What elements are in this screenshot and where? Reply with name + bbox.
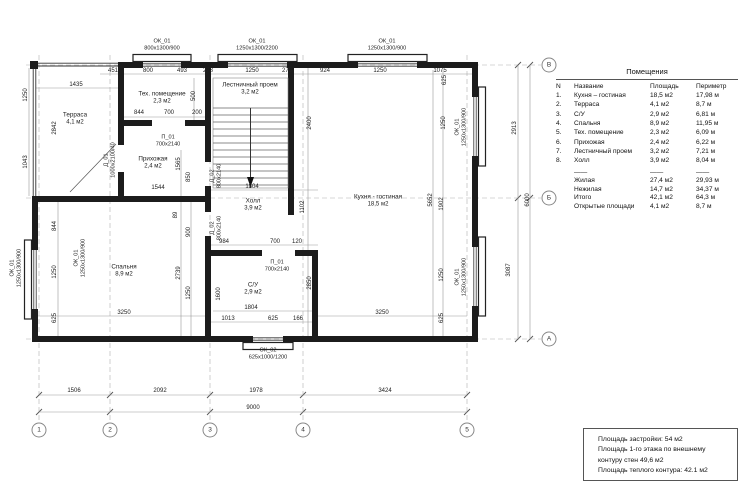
table-cell-area: 2,3 м2 bbox=[650, 129, 696, 136]
room-area: 3,9 м2 bbox=[244, 205, 261, 213]
dimension-label: 900 bbox=[186, 227, 192, 237]
rooms-table-rule bbox=[556, 79, 738, 80]
opening-size: 1250х1300/900 bbox=[461, 258, 468, 297]
table-cell-name: Нежилая bbox=[574, 186, 650, 193]
room-name: Холл bbox=[244, 197, 261, 205]
dimension-label: 2739 bbox=[176, 266, 182, 279]
table-cell-area: 14,7 м2 bbox=[650, 186, 696, 193]
dimension-label: 2913 bbox=[512, 121, 518, 134]
room-name: Лестничный проем bbox=[222, 81, 277, 89]
table-cell-name: Терраса bbox=[574, 101, 650, 108]
table-row: 4.Спальня8,9 м211,95 м bbox=[556, 119, 738, 128]
col-perimeter: Периметр bbox=[696, 83, 738, 90]
dimension-label: 1250 bbox=[52, 265, 58, 278]
rooms-table-title: Помещения bbox=[556, 67, 738, 76]
dimension-label: 924 bbox=[320, 68, 330, 74]
table-cell-area: 2,4 м2 bbox=[650, 139, 696, 146]
room-area: 2,4 м2 bbox=[138, 163, 167, 171]
dimension-label: 800 bbox=[143, 68, 153, 74]
opening-size: 1000х2100/40 bbox=[110, 142, 117, 177]
opening-code: ОК_01 bbox=[236, 38, 278, 45]
opening-code: ОК_01 bbox=[368, 38, 407, 45]
table-row: 3.С/У2,9 м26,81 м bbox=[556, 110, 738, 119]
dimension-label: 1102 bbox=[300, 201, 306, 214]
dimension-label: 278 bbox=[282, 68, 292, 74]
opening-size: 700х2140 bbox=[156, 141, 181, 148]
dimension-label: 850 bbox=[186, 172, 192, 182]
room-name: Терраса bbox=[63, 111, 87, 119]
opening-label: П_01700х2140 bbox=[156, 134, 181, 147]
table-cell-n: 7. bbox=[556, 148, 574, 155]
opening-size: 700х2140 bbox=[265, 266, 290, 273]
table-cell-area: 3,9 м2 bbox=[650, 157, 696, 164]
col-area: Площадь bbox=[650, 83, 696, 90]
dimension-label: 700 bbox=[164, 110, 174, 116]
col-name: Название bbox=[574, 83, 650, 90]
dimension-label: 1250 bbox=[439, 268, 445, 281]
dimension-label: 500 bbox=[191, 91, 197, 101]
opening-size: 800х2140 bbox=[216, 216, 223, 241]
opening-size: 800х1300/900 bbox=[144, 45, 179, 52]
opening-label: ОК_01800х1300/900 bbox=[144, 38, 179, 51]
dimension-label: 1506 bbox=[67, 388, 80, 394]
opening-code: Д_01 bbox=[103, 142, 110, 177]
dimension-label: 1435 bbox=[69, 82, 82, 88]
dimension-label: 120 bbox=[292, 239, 302, 245]
table-cell-name: Спальня bbox=[574, 120, 650, 127]
opening-size: 1250х1300/900 bbox=[368, 45, 407, 52]
room-area: 2,3 м2 bbox=[138, 98, 185, 106]
dimension-label: 3250 bbox=[117, 310, 130, 316]
room-label: Холл3,9 м2 bbox=[244, 197, 261, 212]
table-cell-name: —— bbox=[574, 169, 650, 176]
table-cell-area: 3,2 м2 bbox=[650, 148, 696, 155]
dimension-label: 89 bbox=[173, 212, 179, 219]
opening-size: 1250х1300/2200 bbox=[236, 45, 278, 52]
drawing-sheet: 1435451800493278125027892412501075844700… bbox=[0, 0, 738, 502]
opening-size: 625х1000/1200 bbox=[249, 354, 288, 361]
grid-bubble-col: 3 bbox=[203, 423, 218, 438]
dimension-label: 844 bbox=[134, 110, 144, 116]
opening-size: 1250х1300/900 bbox=[16, 249, 23, 288]
dimension-label: 1600 bbox=[216, 287, 222, 300]
grid-bubble-row: Б bbox=[542, 191, 557, 206]
dimension-label: 200 bbox=[192, 110, 202, 116]
dimension-label: 1043 bbox=[23, 155, 29, 168]
dimension-label: 700 bbox=[270, 239, 280, 245]
table-cell-perimeter: 6,81 м bbox=[696, 111, 738, 118]
grid-bubble-row: А bbox=[542, 332, 557, 347]
opening-code: ОК_02 bbox=[249, 347, 288, 354]
opening-label: ОК_011250х1300/900 bbox=[73, 239, 86, 278]
table-cell-perimeter: 7,21 м bbox=[696, 148, 738, 155]
opening-code: П_01 bbox=[265, 259, 290, 266]
grid-bubble-col: 1 bbox=[32, 423, 47, 438]
dimension-label: 1250 bbox=[23, 88, 29, 101]
room-name: Кухня - гостиная bbox=[354, 193, 402, 201]
note-line: Площадь 1-го этажа по внешнему bbox=[598, 445, 708, 455]
opening-code: ОК_01 bbox=[454, 108, 461, 147]
room-label: Кухня - гостиная18,5 м2 bbox=[354, 193, 402, 208]
table-cell-area: 2,9 м2 bbox=[650, 111, 696, 118]
dimension-label: 625 bbox=[52, 313, 58, 323]
opening-label: ОК_02625х1000/1200 bbox=[249, 347, 288, 360]
dimension-label: 1978 bbox=[249, 388, 262, 394]
table-cell-area: 4,1 м2 bbox=[650, 101, 696, 108]
dimension-label: 625 bbox=[439, 313, 445, 323]
dimension-label: 1250 bbox=[373, 68, 386, 74]
opening-label: Д_02800х2140 bbox=[209, 164, 222, 189]
grid-bubble-row: В bbox=[542, 58, 557, 73]
dimension-label: 493 bbox=[177, 68, 187, 74]
dimension-label: 1565 bbox=[176, 157, 182, 170]
table-cell-perimeter: 11,95 м bbox=[696, 120, 738, 127]
grid-bubble-col: 5 bbox=[460, 423, 475, 438]
dimension-label: 1013 bbox=[221, 316, 234, 322]
opening-size: 800х2140 bbox=[216, 164, 223, 189]
dimension-label: 1250 bbox=[441, 116, 447, 129]
notes-box: Площадь застройки: 54 м2Площадь 1-го эта… bbox=[583, 428, 738, 481]
opening-label: ОК_011250х1300/2200 bbox=[236, 38, 278, 51]
dimension-label: 1250 bbox=[245, 68, 258, 74]
note-line: Площадь застройки: 54 м2 bbox=[598, 435, 708, 445]
table-cell-n: 8. bbox=[556, 157, 574, 164]
dimension-label: 1804 bbox=[244, 305, 257, 311]
dimension-label: 1250 bbox=[186, 286, 192, 299]
dimension-label: 166 bbox=[293, 316, 303, 322]
table-cell-n: 2. bbox=[556, 101, 574, 108]
dimension-label: 1902 bbox=[439, 197, 445, 210]
dimension-label: 6000 bbox=[525, 193, 531, 206]
dimension-label: 2092 bbox=[153, 388, 166, 394]
table-cell-name: Лестничный проем bbox=[574, 148, 650, 155]
dimension-label: 625 bbox=[442, 75, 448, 85]
dimension-label: 2842 bbox=[52, 121, 58, 134]
table-cell-name: Открытые площади bbox=[574, 203, 650, 210]
col-n: N bbox=[556, 83, 574, 90]
table-cell-perimeter: 64,3 м bbox=[696, 194, 738, 201]
room-name: С/У bbox=[244, 281, 261, 289]
room-name: Прихожая bbox=[138, 155, 167, 163]
dimension-label: 3087 bbox=[506, 263, 512, 276]
dimension-label: 451 bbox=[108, 68, 118, 74]
opening-code: Д_02 bbox=[209, 216, 216, 241]
room-area: 4,1 м2 bbox=[63, 119, 87, 127]
opening-label: ОК_011250х1300/900 bbox=[9, 249, 22, 288]
room-label: Терраса4,1 м2 bbox=[63, 111, 87, 126]
opening-label: ОК_011250х1300/900 bbox=[368, 38, 407, 51]
dimension-label: 278 bbox=[203, 68, 213, 74]
opening-size: 1250х1300/900 bbox=[80, 239, 87, 278]
dimension-label: 9000 bbox=[246, 405, 259, 411]
dimension-label: 2850 bbox=[307, 276, 313, 289]
dimension-label: 2400 bbox=[307, 116, 313, 129]
table-cell-n: 1. bbox=[556, 92, 574, 99]
table-cell-name: Тех. помещение bbox=[574, 129, 650, 136]
opening-code: Д_02 bbox=[209, 164, 216, 189]
table-cell-name: Прихожая bbox=[574, 139, 650, 146]
room-label: Лестничный проем3,2 м2 bbox=[222, 81, 277, 96]
table-cell-n: 4. bbox=[556, 120, 574, 127]
table-row: 1.Кухня – гостиная18,5 м217,98 м bbox=[556, 91, 738, 100]
opening-size: 1250х1300/900 bbox=[461, 108, 468, 147]
room-label: Тех. помещение2,3 м2 bbox=[138, 90, 185, 105]
grid-bubble-col: 4 bbox=[296, 423, 311, 438]
table-cell-n: 3. bbox=[556, 111, 574, 118]
note-line: контуру стен 49,6 м2 bbox=[598, 456, 708, 466]
rooms-table-header: N Название Площадь Периметр bbox=[556, 82, 738, 91]
dimension-label: 5652 bbox=[428, 193, 434, 206]
opening-label: Д_02800х2140 bbox=[209, 216, 222, 241]
table-cell-name: Кухня – гостиная bbox=[574, 92, 650, 99]
opening-code: ОК_01 bbox=[9, 249, 16, 288]
dimension-label: 844 bbox=[52, 221, 58, 231]
room-name: Тех. помещение bbox=[138, 90, 185, 98]
table-cell-perimeter: 6,22 м bbox=[696, 139, 738, 146]
room-name: Спальня bbox=[111, 263, 136, 271]
table-cell-area: 8,9 м2 bbox=[650, 120, 696, 127]
opening-code: ОК_01 bbox=[144, 38, 179, 45]
grid-bubble-col: 2 bbox=[103, 423, 118, 438]
opening-label: ОК_011250х1300/900 bbox=[454, 258, 467, 297]
room-label: Спальня8,9 м2 bbox=[111, 263, 136, 278]
table-cell-n: 6. bbox=[556, 139, 574, 146]
dimension-label: 1075 bbox=[433, 68, 446, 74]
table-cell-perimeter: 29,93 м bbox=[696, 177, 738, 184]
table-cell-perimeter: 8,7 м bbox=[696, 101, 738, 108]
room-area: 8,9 м2 bbox=[111, 271, 136, 279]
dimension-label: 625 bbox=[268, 316, 278, 322]
table-row: 8.Холл3,9 м28,04 м bbox=[556, 156, 738, 165]
room-area: 18,5 м2 bbox=[354, 201, 402, 209]
opening-label: Д_011000х2100/40 bbox=[103, 142, 116, 177]
opening-code: ОК_01 bbox=[454, 258, 461, 297]
table-cell-area: 42,1 м2 bbox=[650, 194, 696, 201]
room-area: 2,9 м2 bbox=[244, 289, 261, 297]
dimension-label: 1544 bbox=[151, 185, 164, 191]
table-row: 7.Лестничный проем3,2 м27,21 м bbox=[556, 147, 738, 156]
dimension-label: 1804 bbox=[245, 184, 258, 190]
table-cell-perimeter: 8,04 м bbox=[696, 157, 738, 164]
table-cell-n: 5. bbox=[556, 129, 574, 136]
table-cell-perimeter: —— bbox=[696, 169, 738, 176]
table-row: 5.Тех. помещение2,3 м26,09 м bbox=[556, 128, 738, 137]
dimension-label: 3250 bbox=[375, 310, 388, 316]
table-cell-area: 4,1 м2 bbox=[650, 203, 696, 210]
notes-lines: Площадь застройки: 54 м2Площадь 1-го эта… bbox=[598, 435, 708, 476]
table-cell-name: Итого bbox=[574, 194, 650, 201]
table-cell-area: —— bbox=[650, 169, 696, 176]
table-cell-perimeter: 34,37 м bbox=[696, 186, 738, 193]
dimension-label: 3424 bbox=[378, 388, 391, 394]
note-line: Площадь теплого контура: 42.1 м2 bbox=[598, 466, 708, 476]
room-label: С/У2,9 м2 bbox=[244, 281, 261, 296]
table-cell-perimeter: 17,98 м bbox=[696, 92, 738, 99]
table-cell-name: С/У bbox=[574, 111, 650, 118]
table-row: 2.Терраса4,1 м28,7 м bbox=[556, 100, 738, 109]
table-cell-perimeter: 6,09 м bbox=[696, 129, 738, 136]
opening-code: П_01 bbox=[156, 134, 181, 141]
table-cell-perimeter: 8,7 м bbox=[696, 203, 738, 210]
opening-code: ОК_01 bbox=[73, 239, 80, 278]
table-cell-area: 27,4 м2 bbox=[650, 177, 696, 184]
table-cell-name: Холл bbox=[574, 157, 650, 164]
room-label: Прихожая2,4 м2 bbox=[138, 155, 167, 170]
opening-label: ОК_011250х1300/900 bbox=[454, 108, 467, 147]
table-cell-area: 18,5 м2 bbox=[650, 92, 696, 99]
table-cell-name: Жилая bbox=[574, 177, 650, 184]
room-area: 3,2 м2 bbox=[222, 89, 277, 97]
table-row: 6.Прихожая2,4 м26,22 м bbox=[556, 138, 738, 147]
opening-label: П_01700х2140 bbox=[265, 259, 290, 272]
table-total-row: Открытые площади4,1 м28,7 м bbox=[556, 202, 738, 211]
